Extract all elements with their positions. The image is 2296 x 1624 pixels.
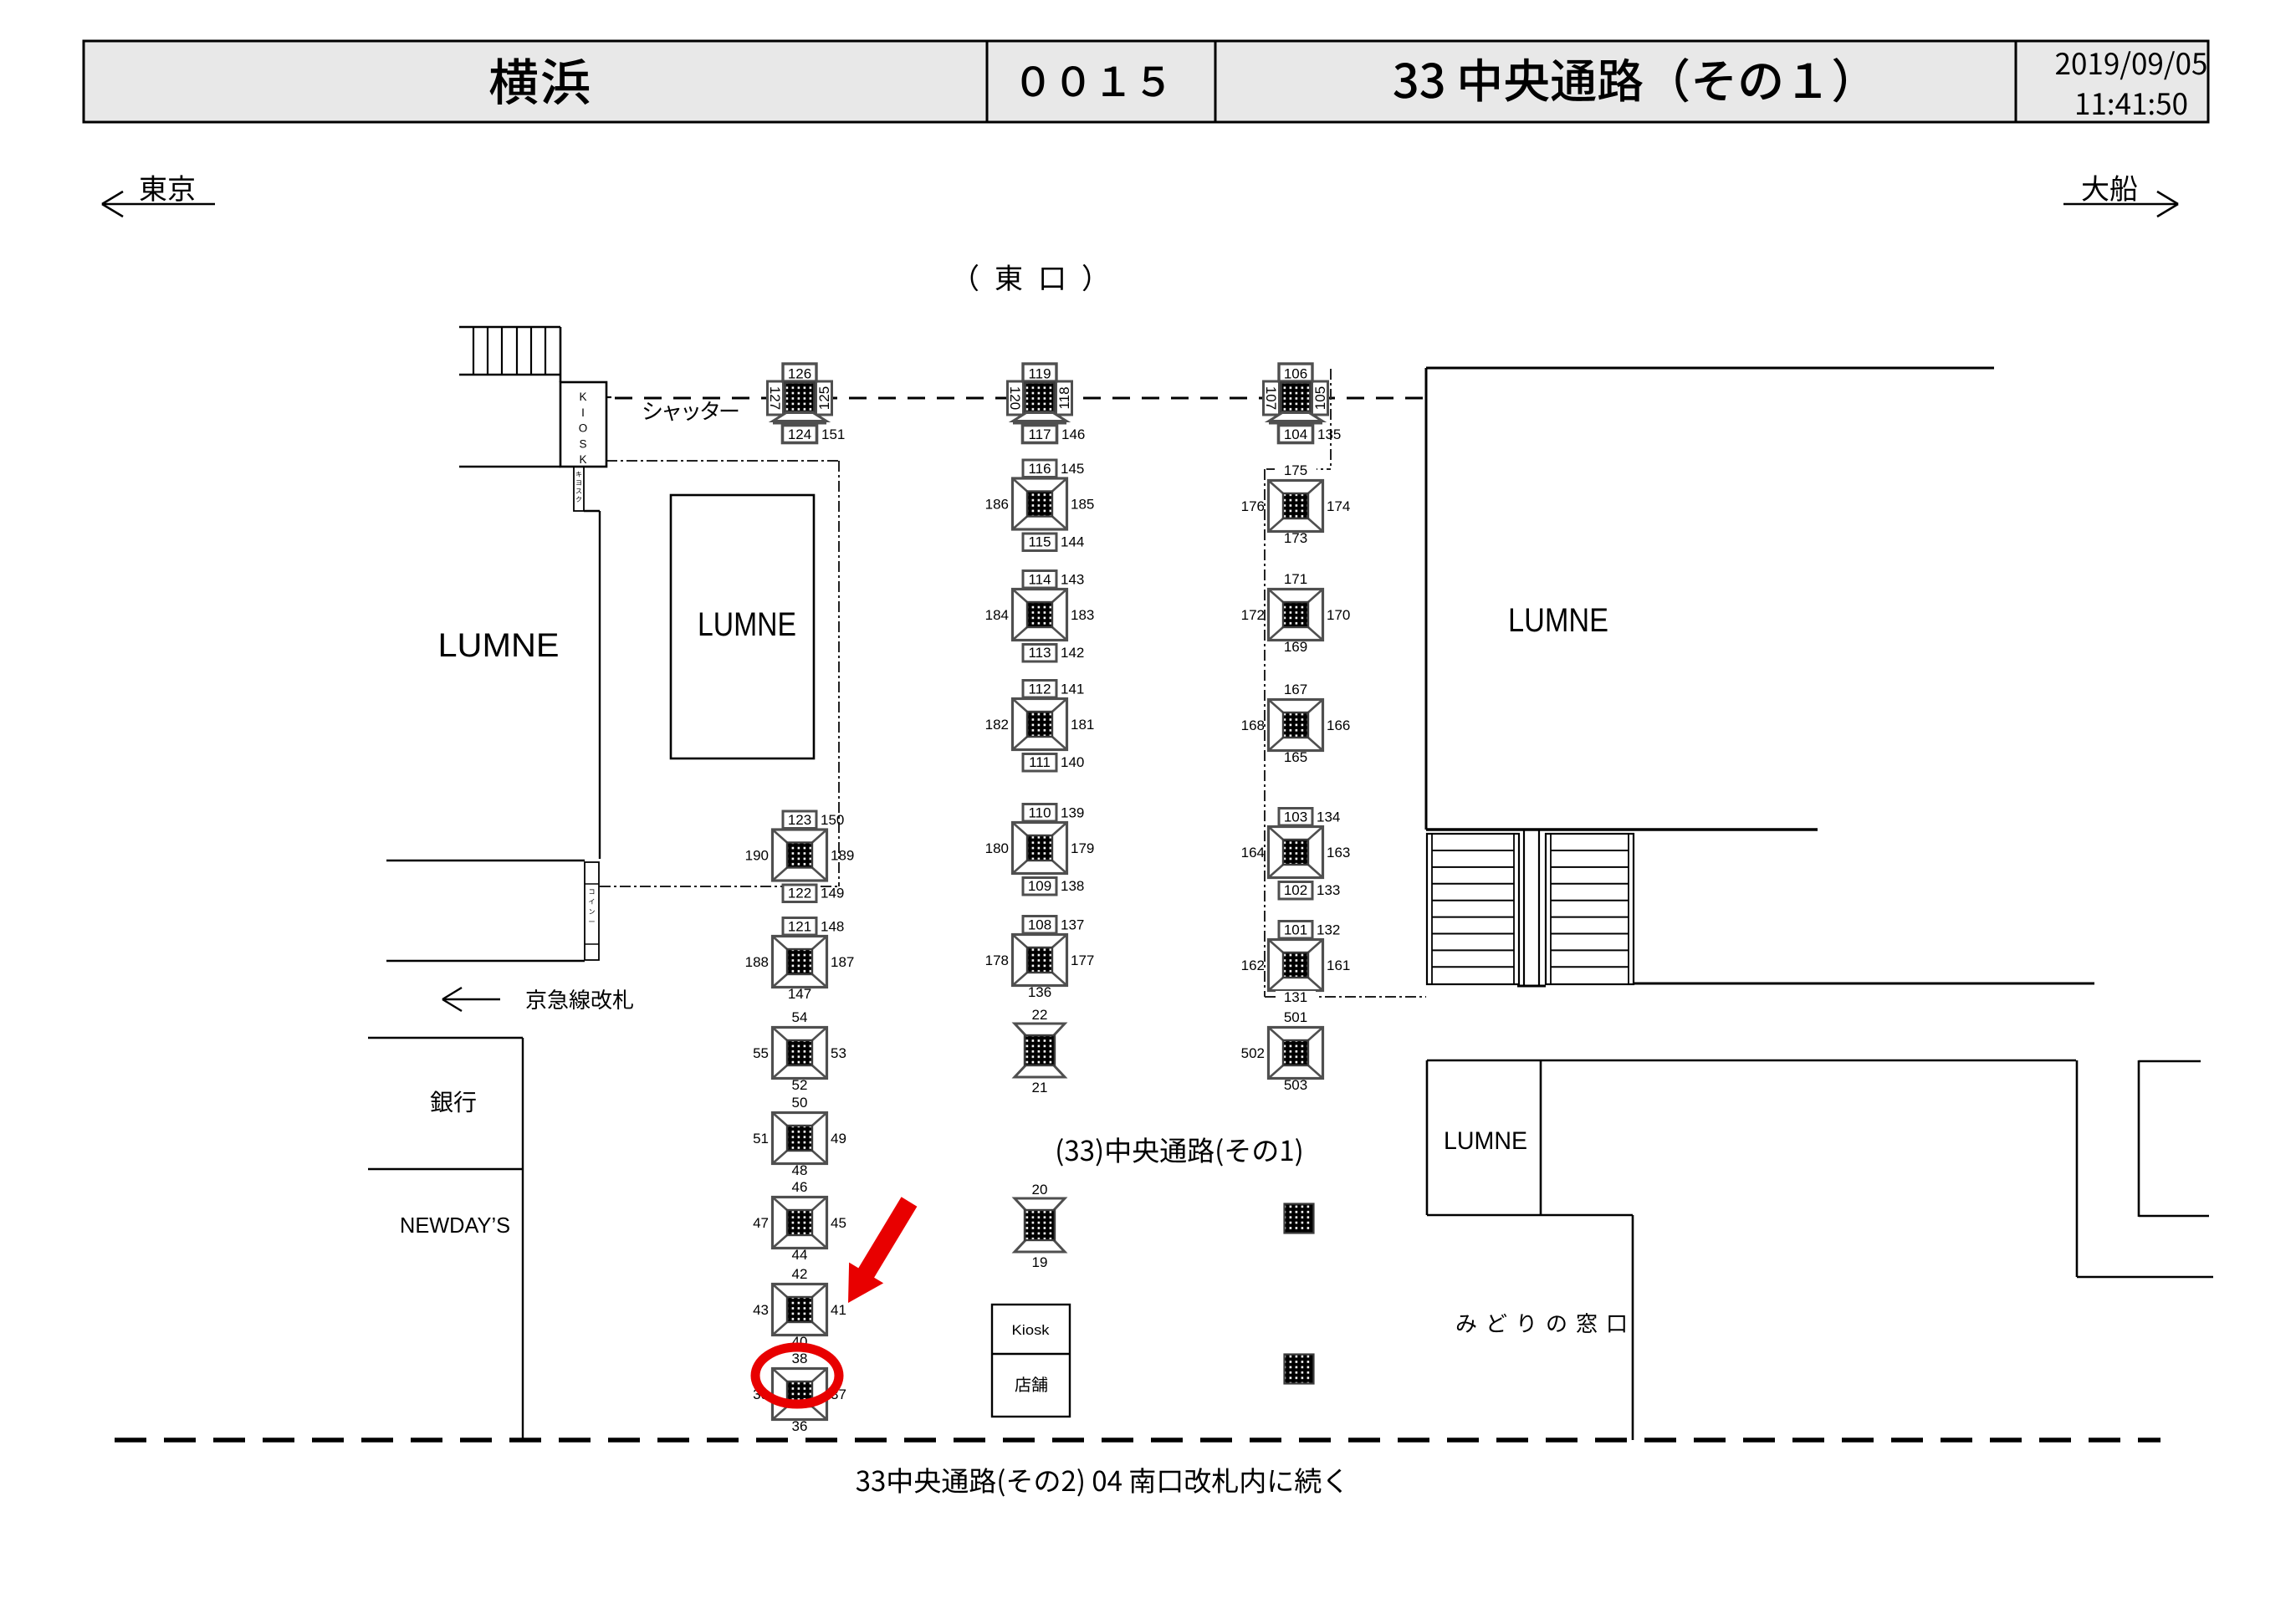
svg-text:503: 503 — [1284, 1077, 1307, 1093]
svg-text:Kiosk: Kiosk — [1012, 1322, 1051, 1338]
svg-text:187: 187 — [831, 954, 854, 970]
svg-text:I: I — [581, 406, 585, 419]
svg-text:138: 138 — [1061, 878, 1084, 894]
svg-text:K: K — [579, 453, 586, 466]
svg-text:119: 119 — [1028, 366, 1051, 382]
svg-text:122: 122 — [788, 886, 811, 901]
svg-text:113: 113 — [1028, 645, 1051, 661]
svg-text:171: 171 — [1284, 571, 1307, 587]
svg-text:161: 161 — [1327, 958, 1350, 973]
svg-text:46: 46 — [792, 1179, 808, 1195]
svg-text:126: 126 — [788, 366, 811, 382]
svg-text:186: 186 — [985, 497, 1009, 513]
svg-text:112: 112 — [1028, 682, 1051, 697]
svg-text:107: 107 — [1263, 386, 1279, 410]
svg-text:108: 108 — [1028, 917, 1051, 933]
svg-text:115: 115 — [1028, 534, 1051, 550]
svg-text:121: 121 — [788, 919, 811, 935]
svg-text:49: 49 — [831, 1131, 846, 1147]
svg-text:143: 143 — [1061, 572, 1084, 588]
svg-text:106: 106 — [1284, 366, 1307, 382]
svg-text:137: 137 — [1061, 917, 1084, 933]
svg-text:120: 120 — [1007, 386, 1023, 410]
svg-text:S: S — [579, 437, 586, 450]
svg-text:54: 54 — [792, 1009, 808, 1025]
svg-text:LUMNE: LUMNE — [698, 606, 796, 643]
svg-text:114: 114 — [1028, 572, 1051, 588]
svg-text:44: 44 — [792, 1247, 808, 1263]
svg-text:22: 22 — [1032, 1007, 1048, 1023]
svg-text:162: 162 — [1241, 958, 1265, 973]
svg-text:42: 42 — [792, 1266, 808, 1282]
svg-text:104: 104 — [1284, 426, 1307, 442]
svg-text:149: 149 — [821, 886, 844, 901]
svg-text:176: 176 — [1241, 498, 1265, 514]
svg-text:183: 183 — [1071, 607, 1094, 623]
svg-text:147: 147 — [788, 986, 811, 1002]
svg-text:101: 101 — [1284, 922, 1307, 938]
svg-text:170: 170 — [1327, 607, 1350, 623]
svg-text:174: 174 — [1327, 498, 1350, 514]
svg-text:132: 132 — [1317, 922, 1340, 938]
svg-text:141: 141 — [1061, 682, 1084, 697]
svg-text:181: 181 — [1071, 717, 1094, 733]
svg-text:52: 52 — [792, 1077, 808, 1093]
svg-text:182: 182 — [985, 717, 1009, 733]
svg-text:118: 118 — [1056, 386, 1072, 409]
svg-text:167: 167 — [1284, 682, 1307, 697]
svg-text:150: 150 — [821, 812, 844, 828]
svg-text:117: 117 — [1028, 426, 1051, 442]
svg-text:109: 109 — [1028, 878, 1051, 894]
svg-text:53: 53 — [831, 1045, 846, 1061]
svg-text:189: 189 — [831, 848, 854, 864]
svg-text:135: 135 — [1317, 426, 1341, 442]
svg-text:110: 110 — [1028, 805, 1051, 821]
svg-text:177: 177 — [1071, 952, 1094, 968]
svg-text:166: 166 — [1327, 718, 1350, 733]
svg-text:133: 133 — [1317, 882, 1340, 898]
svg-text:169: 169 — [1284, 639, 1307, 655]
svg-text:45: 45 — [831, 1215, 846, 1231]
svg-text:184: 184 — [985, 607, 1009, 623]
svg-text:148: 148 — [821, 919, 844, 935]
svg-text:LUMNE: LUMNE — [1444, 1127, 1527, 1155]
svg-text:LUMNE: LUMNE — [438, 627, 560, 664]
svg-text:139: 139 — [1061, 805, 1084, 821]
svg-text:LUMNE: LUMNE — [1508, 602, 1608, 639]
svg-text:146: 146 — [1061, 426, 1085, 442]
svg-text:105: 105 — [1312, 386, 1328, 410]
svg-text:502: 502 — [1241, 1045, 1265, 1061]
svg-text:134: 134 — [1317, 809, 1340, 825]
svg-text:43: 43 — [753, 1302, 769, 1318]
svg-text:185: 185 — [1071, 497, 1094, 513]
svg-text:140: 140 — [1061, 754, 1084, 770]
svg-text:172: 172 — [1241, 607, 1265, 623]
svg-text:131: 131 — [1284, 989, 1307, 1005]
svg-text:136: 136 — [1028, 984, 1051, 1000]
svg-text:55: 55 — [753, 1045, 769, 1061]
svg-text:178: 178 — [985, 952, 1009, 968]
svg-text:36: 36 — [792, 1418, 808, 1434]
svg-text:111: 111 — [1029, 754, 1051, 770]
svg-text:188: 188 — [745, 954, 769, 970]
svg-text:145: 145 — [1061, 461, 1084, 477]
svg-text:38: 38 — [792, 1351, 808, 1366]
svg-text:179: 179 — [1071, 840, 1094, 856]
svg-text:123: 123 — [788, 812, 811, 828]
svg-text:164: 164 — [1241, 845, 1265, 861]
svg-text:175: 175 — [1284, 462, 1307, 478]
svg-text:K: K — [579, 391, 586, 403]
svg-text:103: 103 — [1284, 809, 1307, 825]
svg-text:501: 501 — [1284, 1009, 1307, 1025]
svg-text:168: 168 — [1241, 718, 1265, 733]
svg-text:116: 116 — [1028, 461, 1051, 477]
svg-text:41: 41 — [831, 1302, 846, 1318]
svg-text:102: 102 — [1284, 882, 1307, 898]
svg-text:124: 124 — [788, 426, 811, 442]
svg-text:O: O — [579, 422, 588, 435]
svg-text:190: 190 — [745, 848, 769, 864]
svg-text:144: 144 — [1061, 534, 1084, 550]
svg-text:151: 151 — [821, 426, 845, 442]
svg-text:127: 127 — [767, 386, 783, 410]
svg-text:19: 19 — [1032, 1254, 1048, 1270]
svg-text:50: 50 — [792, 1095, 808, 1111]
svg-text:20: 20 — [1032, 1182, 1048, 1198]
svg-text:NEWDAY’S: NEWDAY’S — [400, 1213, 510, 1238]
svg-text:51: 51 — [753, 1131, 769, 1147]
svg-text:47: 47 — [753, 1215, 769, 1231]
svg-text:165: 165 — [1284, 749, 1307, 765]
svg-text:142: 142 — [1061, 645, 1084, 661]
svg-text:21: 21 — [1032, 1080, 1048, 1095]
svg-text:163: 163 — [1327, 845, 1350, 861]
svg-text:180: 180 — [985, 840, 1009, 856]
svg-text:48: 48 — [792, 1162, 808, 1178]
svg-text:173: 173 — [1284, 530, 1307, 546]
svg-text:125: 125 — [816, 386, 832, 410]
